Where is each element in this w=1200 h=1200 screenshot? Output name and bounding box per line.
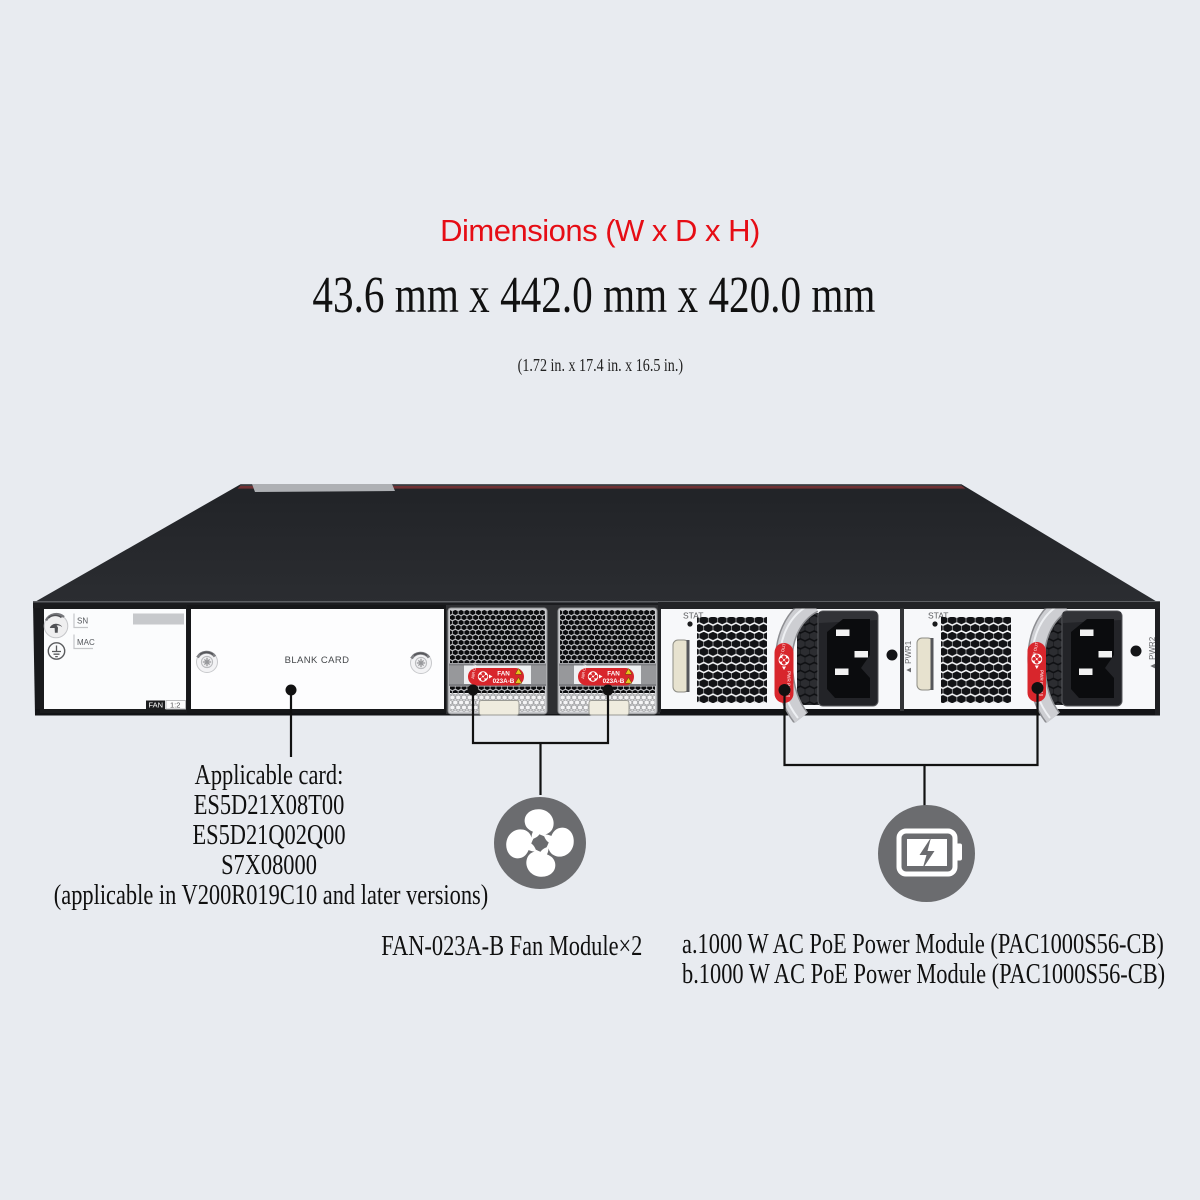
svg-text:MAC: MAC [77, 638, 95, 647]
svg-text:▲ PWR2: ▲ PWR2 [1148, 636, 1157, 670]
svg-text:FAN: FAN [607, 671, 620, 678]
svg-text:023A-B: 023A-B [603, 678, 625, 685]
svg-text:▲ PWR1: ▲ PWR1 [904, 640, 913, 674]
svg-text:FAN: FAN [149, 701, 164, 710]
svg-text:FAN: FAN [497, 671, 510, 678]
svg-text:BLANK CARD: BLANK CARD [285, 655, 350, 666]
svg-text:023A-B: 023A-B [493, 678, 515, 685]
svg-text:SN: SN [77, 617, 88, 626]
svg-text:1:2: 1:2 [170, 701, 180, 710]
